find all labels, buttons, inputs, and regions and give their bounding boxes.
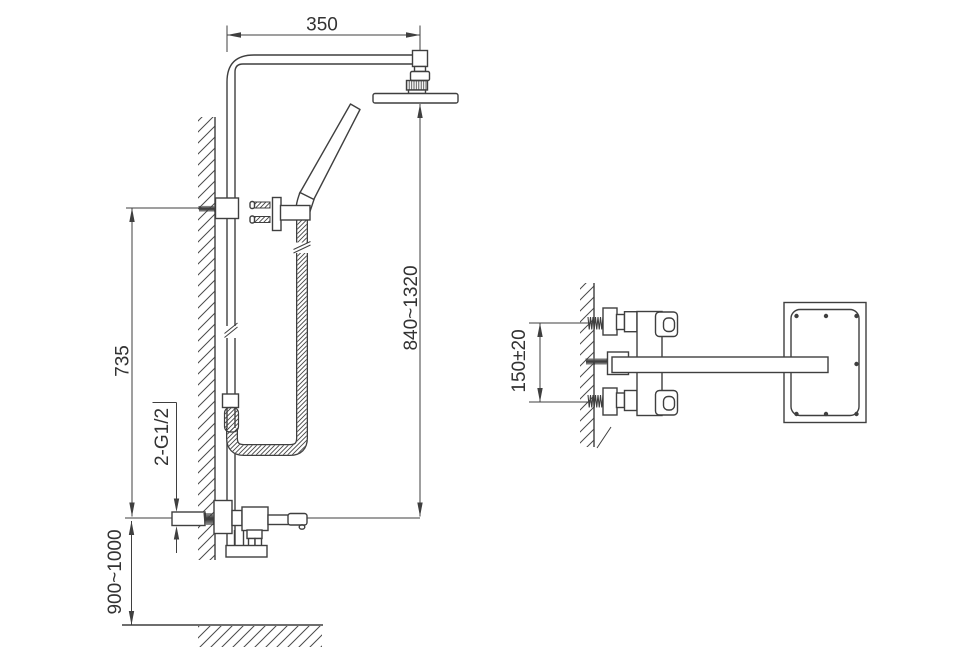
ball-joint bbox=[411, 72, 430, 81]
connector-neck bbox=[617, 315, 625, 330]
dim-label-350: 350 bbox=[306, 15, 338, 36]
eccentric-flange bbox=[603, 308, 617, 335]
eccentric-flange bbox=[603, 388, 617, 415]
rain-shower-head bbox=[373, 51, 458, 104]
hand-shower-handle bbox=[300, 104, 361, 200]
wall-screw-thread bbox=[586, 359, 608, 365]
holder-flange bbox=[273, 198, 282, 231]
hose-nut bbox=[225, 408, 239, 433]
knurled-nut bbox=[407, 81, 428, 91]
handle-stem bbox=[268, 515, 290, 525]
arm-end-fitting bbox=[413, 51, 428, 67]
screw-head bbox=[250, 216, 255, 223]
eccentric-flange bbox=[214, 501, 232, 534]
valve-neck bbox=[232, 511, 242, 526]
label-inlet-thread: 2-G1/2 bbox=[152, 403, 179, 554]
technical-drawing-page: 350 840~1320 735 900~1000 2- bbox=[0, 0, 975, 660]
wall-section-front bbox=[198, 117, 215, 560]
valve-body bbox=[242, 507, 268, 531]
diverter bbox=[247, 530, 262, 539]
bottom-inlet-connector bbox=[588, 388, 637, 415]
thread-label: 2-G1/2 bbox=[152, 408, 173, 466]
handle-lever bbox=[288, 514, 307, 526]
dimension-735: 735 bbox=[113, 208, 203, 517]
screw bbox=[253, 217, 270, 223]
dim-label-900-1000: 900~1000 bbox=[105, 529, 126, 614]
shower-arm-plan bbox=[612, 357, 828, 373]
connector-neck bbox=[617, 393, 625, 408]
dimension-900-1000: 900~1000 bbox=[105, 521, 134, 625]
bracket-block bbox=[216, 198, 239, 219]
screw-head bbox=[250, 202, 255, 209]
hose-break bbox=[294, 242, 311, 254]
dim-label-150-20: 150±20 bbox=[509, 329, 530, 392]
pipe-break bbox=[224, 323, 238, 338]
top-inlet-connector bbox=[588, 308, 637, 335]
supply-pipe bbox=[172, 512, 205, 526]
dimension-350: 350 bbox=[227, 15, 420, 53]
mounting-screws bbox=[250, 202, 270, 224]
mixer-valve bbox=[172, 501, 307, 558]
riser-pipe bbox=[224, 55, 415, 545]
shower-set-installation-drawing: 350 840~1320 735 900~1000 2- bbox=[0, 0, 975, 660]
screw bbox=[253, 202, 270, 208]
front-view: 350 840~1320 735 900~1000 2- bbox=[105, 15, 458, 648]
dimension-150-20: 150±20 bbox=[509, 323, 592, 402]
floor-line bbox=[122, 625, 323, 647]
connector-collar bbox=[625, 312, 638, 332]
bracket-screw-thread bbox=[199, 206, 216, 212]
bottom-outlet bbox=[226, 546, 267, 558]
handle-tip bbox=[299, 525, 305, 529]
ball-joint-neck bbox=[415, 67, 426, 72]
holder-arm bbox=[281, 206, 311, 221]
dim-label-840-1320: 840~1320 bbox=[401, 265, 422, 350]
side-view: 150±20 bbox=[509, 283, 866, 448]
shower-head-plate bbox=[373, 94, 458, 104]
hose-outlet-collar bbox=[223, 394, 239, 408]
connector-collar bbox=[625, 391, 638, 411]
dim-label-735: 735 bbox=[113, 345, 134, 377]
dimension-840-1320: 840~1320 bbox=[401, 104, 423, 517]
hand-shower bbox=[291, 104, 360, 218]
